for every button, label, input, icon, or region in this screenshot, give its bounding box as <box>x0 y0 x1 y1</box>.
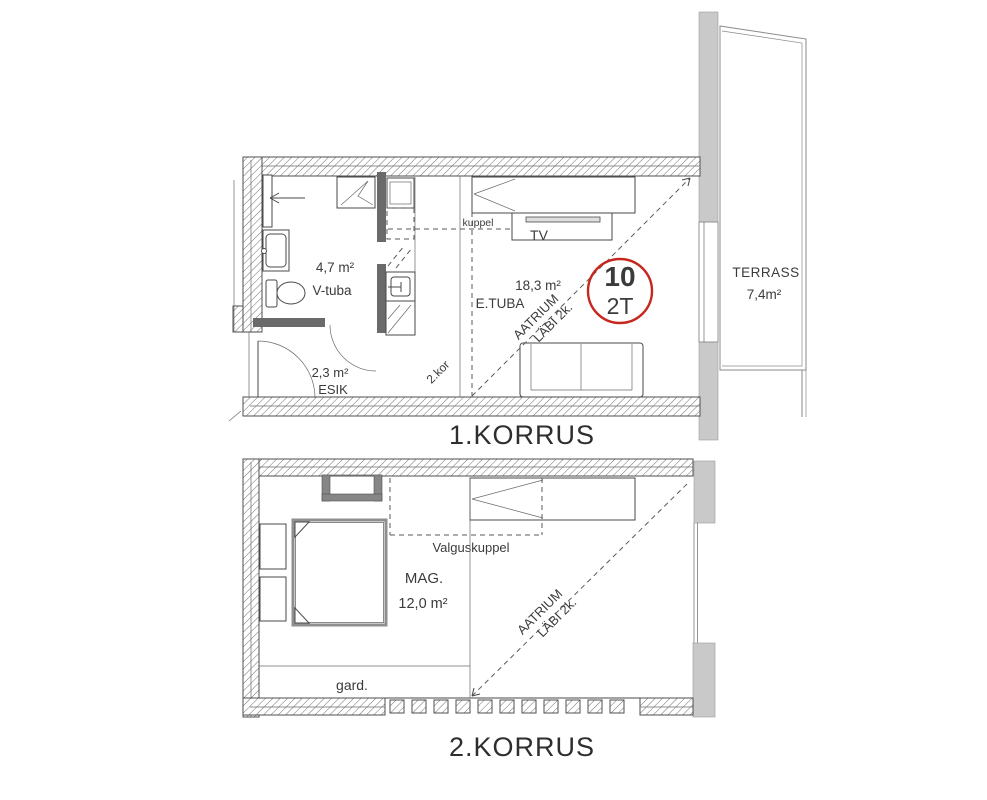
etuba-area: 18,3 m² <box>515 278 561 293</box>
kuppel-label: kuppel <box>463 217 494 229</box>
wardrobe <box>472 177 635 213</box>
floorplan-page: TERRASS 7,4m² <box>0 0 987 800</box>
living-area: kuppel TV 18,3 m² E.TUBA AATRIUM LÄBI 2k… <box>312 176 690 397</box>
nightstand <box>260 577 286 621</box>
valguskuppel-label: Valguskuppel <box>432 540 509 555</box>
esik-name: ESIK <box>318 382 348 397</box>
bed <box>293 520 386 625</box>
mag-name: MAG. <box>405 570 443 587</box>
gard-label: gard. <box>336 677 368 693</box>
vtuba-area: 4,7 m² <box>316 260 355 275</box>
bedroom: MAG. 12,0 m² <box>260 520 448 625</box>
sofa <box>520 343 643 397</box>
unit-number: 10 <box>604 261 635 292</box>
floor1-right-wall <box>699 12 718 440</box>
toilet-tank <box>266 280 277 307</box>
kitchen <box>386 177 415 335</box>
entry-door-arc <box>258 341 315 398</box>
terrace: TERRASS 7,4m² <box>720 26 806 417</box>
terrace-outline <box>720 26 806 370</box>
skylight-chimney <box>322 475 382 501</box>
floorplan-drawing: TERRASS 7,4m² <box>0 0 987 800</box>
upper-cabinet-dashed <box>387 208 414 239</box>
terrace-name: TERRASS <box>732 265 799 280</box>
svg-text:2.kor: 2.kor <box>424 358 453 387</box>
doors <box>249 325 376 398</box>
wardrobe-2f <box>470 478 635 520</box>
floor2-plan: MAG. 12,0 m² Valguskuppel gard. <box>243 459 715 762</box>
second-floor-ref: 2.kor <box>424 358 453 387</box>
mag-area: 12,0 m² <box>398 596 447 612</box>
unit-badge: 10 2T <box>588 259 652 323</box>
window <box>699 222 718 342</box>
corner-tick <box>229 411 241 421</box>
floor2-title: 2.KORRUS <box>449 732 595 762</box>
floor1-plan: TERRASS 7,4m² <box>229 12 806 450</box>
esik-area: 2,3 m² <box>312 365 350 380</box>
garderobe: gard. <box>259 666 470 693</box>
tv-screen <box>526 217 600 222</box>
floor1-title: 1.KORRUS <box>449 420 595 450</box>
watermark-hatch <box>390 700 624 713</box>
unit-type: 2T <box>607 293 634 319</box>
etuba-name: E.TUBA <box>476 296 525 311</box>
vtuba-name: V-tuba <box>312 283 352 298</box>
tv-label: TV <box>530 227 549 243</box>
nightstand <box>260 524 286 569</box>
kitchen-cabinet <box>387 178 414 208</box>
toilet-bowl <box>277 282 305 304</box>
towel-rail <box>263 175 272 227</box>
bathroom: 4,7 m² V-tuba <box>262 175 376 307</box>
terrace-area: 7,4m² <box>747 287 782 302</box>
floor2-right-wall <box>693 461 715 717</box>
atrium-label-2f: AATRIUM LÄBI 2k. <box>514 583 579 648</box>
